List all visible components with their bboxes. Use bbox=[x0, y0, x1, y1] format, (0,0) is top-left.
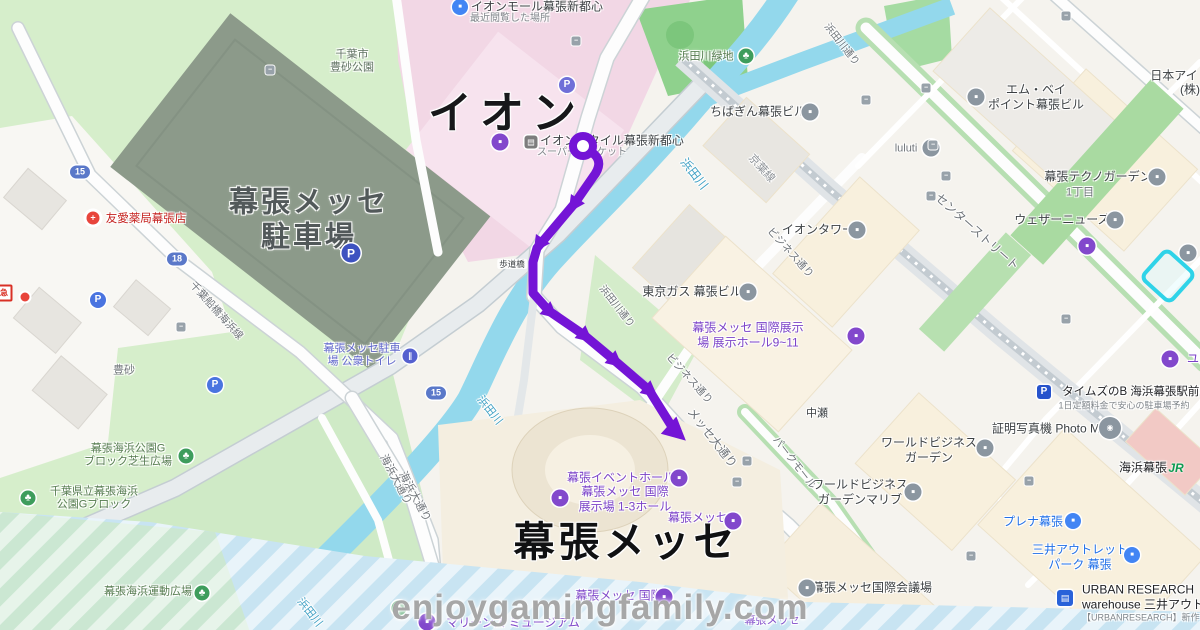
trees bbox=[666, 21, 694, 49]
map-canvas[interactable]: イオン幕張メッセ駐車場幕張メッセイオンモール幕張新都心最近閲覧した場所イオンスタ… bbox=[0, 0, 1200, 630]
event-hall-roof bbox=[545, 435, 635, 505]
map-background bbox=[0, 0, 1200, 630]
